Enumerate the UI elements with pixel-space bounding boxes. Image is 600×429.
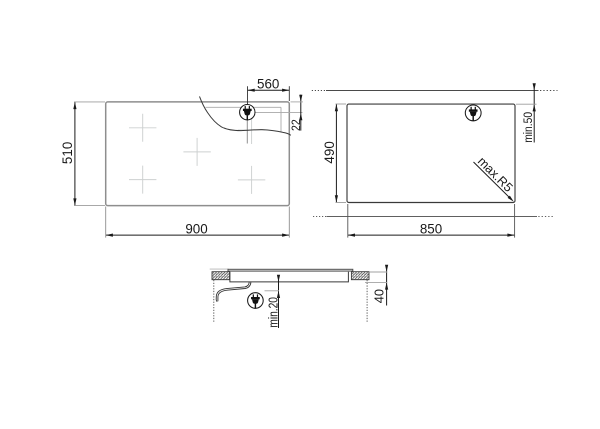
svg-text:22: 22 [290,119,303,131]
svg-text:900: 900 [185,221,207,236]
svg-text:850: 850 [420,221,442,236]
svg-text:40: 40 [372,289,387,303]
svg-text:560: 560 [257,77,279,92]
svg-text:min.20: min.20 [267,297,280,328]
svg-text:min.50: min.50 [522,112,535,143]
svg-text:490: 490 [322,141,337,163]
svg-text:510: 510 [60,142,75,164]
